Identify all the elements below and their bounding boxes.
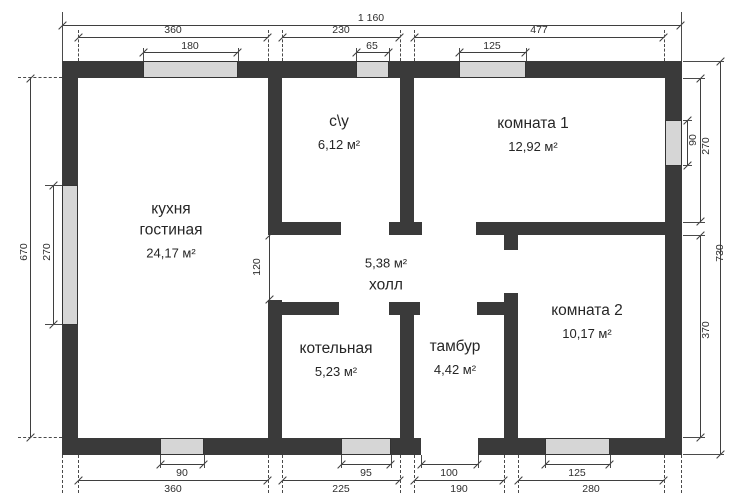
dim-label-bottom-seg2: 225 xyxy=(317,483,365,495)
room-name: тамбур xyxy=(430,336,481,357)
dim-line-bottom-seg4 xyxy=(518,480,664,481)
room-area: 10,17 м² xyxy=(551,325,623,342)
room-area: 5,38 м² xyxy=(365,255,407,272)
dim-label-bottom-seg3: 190 xyxy=(435,483,483,495)
extension-line xyxy=(62,455,63,493)
extension-line xyxy=(683,78,705,79)
dim-line-top-seg2 xyxy=(282,37,400,38)
dim-label-top-seg2: 230 xyxy=(317,24,365,36)
window-bottom-room2 xyxy=(545,438,610,455)
wall-hall-top-c xyxy=(476,222,665,235)
extension-line xyxy=(160,455,161,468)
extension-line xyxy=(391,455,392,468)
window-top-bathroom xyxy=(356,61,389,78)
extension-line xyxy=(62,12,63,61)
dim-label-bottom-win2: 95 xyxy=(342,467,390,479)
extension-line xyxy=(681,455,682,493)
room-label-vestibule: тамбур 4,42 м² xyxy=(430,336,481,378)
room-area: 6,12 м² xyxy=(318,136,360,153)
room-name: комната 1 xyxy=(497,113,569,134)
dim-line-top-seg1 xyxy=(78,37,268,38)
dim-label-top-total: 1 160 xyxy=(347,12,395,24)
wall-kitchen-lower xyxy=(268,300,282,438)
wall-kitchen-upper xyxy=(268,78,282,235)
dim-label-left-win: 270 xyxy=(41,228,53,276)
dim-label-right-upper: 270 xyxy=(700,122,712,170)
window-right-room1 xyxy=(665,120,682,166)
dim-line-bottom-win2 xyxy=(341,464,391,465)
room-label-kitchen: кухня гостиная 24,17 м² xyxy=(139,199,202,262)
extension-line xyxy=(421,455,422,468)
room-name: с\у xyxy=(318,111,360,132)
dim-label-right-win: 90 xyxy=(687,116,699,164)
room-label-room1: комната 1 12,92 м² xyxy=(497,113,569,155)
extension-line xyxy=(683,222,705,223)
extension-line xyxy=(526,48,527,61)
extension-line xyxy=(268,455,269,493)
extension-line xyxy=(414,455,415,493)
dim-line-left-total xyxy=(30,78,31,438)
window-top-room1 xyxy=(459,61,526,78)
dim-line-bottom-seg3 xyxy=(414,480,504,481)
dim-label-bottom-win1: 90 xyxy=(158,467,206,479)
extension-line xyxy=(683,437,705,438)
extension-line xyxy=(18,77,62,78)
room-name: кухня xyxy=(139,199,202,220)
window-left-kitchen xyxy=(62,185,78,325)
dim-label-top-win1: 180 xyxy=(166,40,214,52)
extension-line xyxy=(683,165,692,166)
extension-line xyxy=(45,185,62,186)
dim-label-left-total: 670 xyxy=(18,228,30,276)
extension-line xyxy=(545,455,546,468)
room-label-room2: комната 2 10,17 м² xyxy=(551,300,623,342)
window-bottom-kitchen xyxy=(160,438,204,455)
extension-line xyxy=(459,48,460,61)
extension-line xyxy=(400,455,401,493)
extension-line xyxy=(45,324,62,325)
extension-line xyxy=(664,30,665,61)
extension-line xyxy=(282,455,283,493)
dim-label-right-lower: 370 xyxy=(700,306,712,354)
wall-bathroom-room1 xyxy=(400,78,414,222)
room-label-hall: 5,38 м² холл xyxy=(365,255,407,296)
extension-line xyxy=(143,48,144,61)
extension-line xyxy=(518,455,519,493)
extension-line xyxy=(683,454,724,455)
dim-label-right-total: 730 xyxy=(714,229,726,277)
extension-line xyxy=(18,437,62,438)
dim-line-bottom-door xyxy=(421,464,478,465)
extension-line xyxy=(683,120,692,121)
window-top-kitchen xyxy=(143,61,238,78)
dim-line-bottom-win1 xyxy=(160,464,204,465)
room-label-bathroom: с\у 6,12 м² xyxy=(318,111,360,153)
room-name: холл xyxy=(365,275,407,296)
dim-line-top-win3 xyxy=(459,52,526,53)
room-name: комната 2 xyxy=(551,300,623,321)
extension-line xyxy=(78,455,79,493)
dim-line-hall-opening xyxy=(269,235,270,300)
dim-line-bottom-seg2 xyxy=(282,480,400,481)
extension-line xyxy=(681,12,682,61)
dim-line-bottom-seg1 xyxy=(78,480,268,481)
dim-label-top-win3: 125 xyxy=(468,40,516,52)
extension-line xyxy=(341,455,342,468)
extension-line xyxy=(204,455,205,468)
wall-boiler-vestibule xyxy=(400,302,414,438)
extension-line xyxy=(504,455,505,493)
extension-line xyxy=(356,48,357,61)
wall-room2-lower xyxy=(504,293,518,438)
dim-label-bottom-seg4: 280 xyxy=(567,483,615,495)
room-area: 12,92 м² xyxy=(497,138,569,155)
extension-line xyxy=(683,235,705,236)
window-bottom-boiler xyxy=(341,438,391,455)
extension-line xyxy=(268,30,269,61)
extension-line xyxy=(414,30,415,61)
extension-line xyxy=(664,455,665,493)
room-label-boiler: котельная 5,23 м² xyxy=(300,338,373,380)
room-name: котельная xyxy=(300,338,373,359)
extension-line xyxy=(683,61,724,62)
floor-plan: кухня гостиная 24,17 м² с\у 6,12 м² комн… xyxy=(0,0,742,502)
extension-line xyxy=(238,48,239,61)
dim-line-left-win xyxy=(53,185,54,325)
extension-line xyxy=(400,30,401,61)
wall-hall-bottom-a xyxy=(282,302,339,315)
dim-line-top-seg3 xyxy=(414,37,664,38)
dim-label-hall-opening: 120 xyxy=(251,243,263,291)
dim-label-top-seg1: 360 xyxy=(149,24,197,36)
room-area: 4,42 м² xyxy=(430,361,481,378)
extension-line xyxy=(78,30,79,61)
dim-label-bottom-door: 100 xyxy=(425,467,473,479)
dim-label-top-seg3: 477 xyxy=(515,24,563,36)
entrance-door-opening xyxy=(421,438,478,455)
extension-line xyxy=(282,30,283,61)
dim-line-top-win1 xyxy=(143,52,238,53)
wall-room2-upper xyxy=(504,235,518,250)
dim-label-bottom-win3: 125 xyxy=(553,467,601,479)
room-area: 5,23 м² xyxy=(300,363,373,380)
wall-hall-top-a xyxy=(282,222,341,235)
extension-line xyxy=(389,48,390,61)
room-name: гостиная xyxy=(139,220,202,241)
dim-line-bottom-win3 xyxy=(545,464,610,465)
wall-hall-top-b xyxy=(389,222,422,235)
extension-line xyxy=(478,455,479,468)
dim-line-top-win2 xyxy=(356,52,389,53)
room-area: 24,17 м² xyxy=(139,245,202,262)
dim-label-bottom-seg1: 360 xyxy=(149,483,197,495)
extension-line xyxy=(610,455,611,468)
